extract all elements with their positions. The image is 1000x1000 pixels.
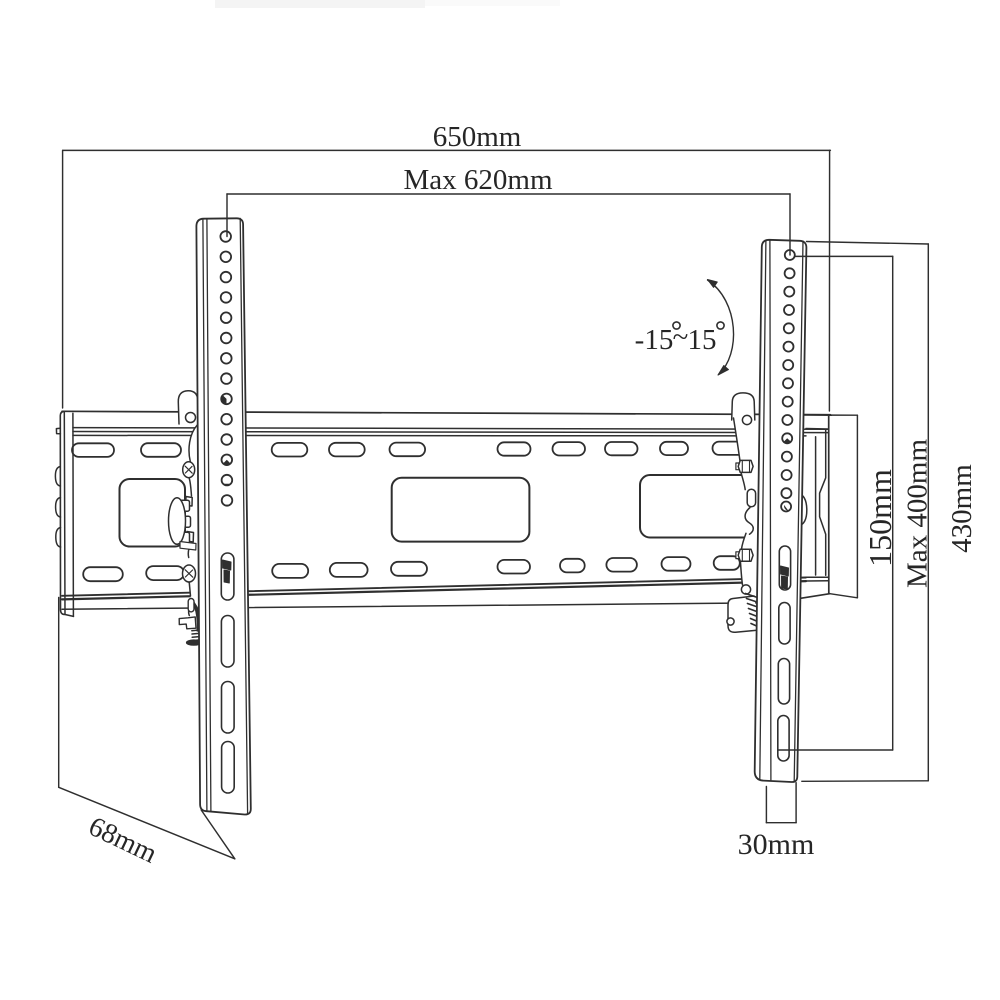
svg-text:15: 15	[688, 324, 717, 356]
svg-text:30mm: 30mm	[738, 828, 815, 861]
svg-text:68mm: 68mm	[84, 811, 162, 870]
svg-text:Max 620mm: Max 620mm	[403, 164, 552, 196]
svg-text:650mm: 650mm	[433, 121, 522, 153]
svg-text:430mm: 430mm	[946, 464, 978, 553]
svg-text:-15: -15	[635, 324, 674, 356]
svg-text:~: ~	[673, 321, 689, 353]
